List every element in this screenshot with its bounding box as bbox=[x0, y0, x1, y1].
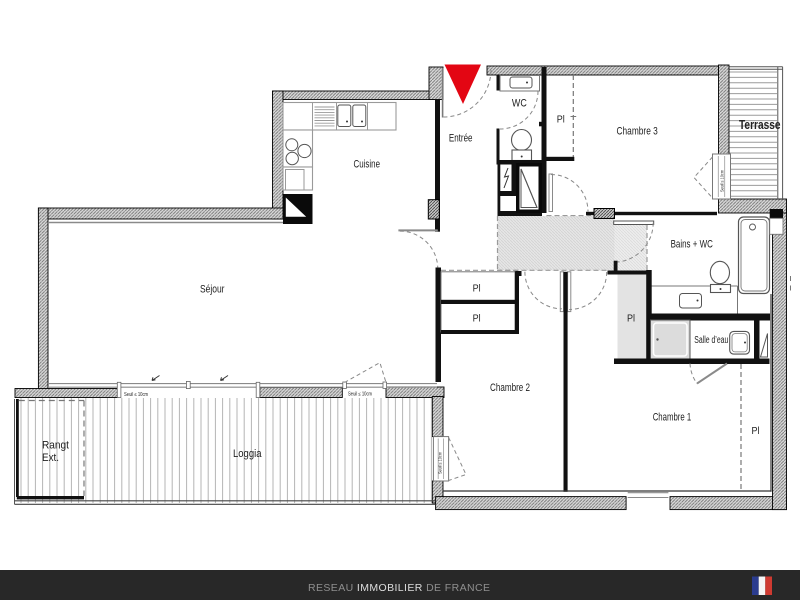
svg-text:Pl: Pl bbox=[752, 425, 760, 437]
svg-text:Seuil ≤ 10cm: Seuil ≤ 10cm bbox=[720, 170, 725, 192]
svg-text:Cuisine: Cuisine bbox=[354, 159, 381, 171]
svg-text:Salle d’eau: Salle d’eau bbox=[694, 335, 728, 346]
svg-text:RESEAU IMMOBILIER DE FRANCE: RESEAU IMMOBILIER DE FRANCE bbox=[308, 582, 490, 594]
svg-text:Loggia: Loggia bbox=[233, 448, 262, 460]
svg-text:Pl: Pl bbox=[627, 313, 635, 325]
svg-text:Seuil ≤ 10cm: Seuil ≤ 10cm bbox=[348, 392, 372, 398]
svg-text:Bains + WC: Bains + WC bbox=[671, 239, 713, 251]
svg-text:Chambre 1: Chambre 1 bbox=[653, 412, 692, 424]
svg-text:Ext.: Ext. bbox=[42, 452, 59, 464]
svg-text:Seuil ≤ 10cm: Seuil ≤ 10cm bbox=[438, 452, 443, 474]
svg-text:Seuil ≤ 10cm: Seuil ≤ 10cm bbox=[124, 392, 148, 398]
svg-text:Pl: Pl bbox=[473, 283, 481, 295]
svg-text:Pl: Pl bbox=[557, 114, 565, 126]
svg-text:Rangt: Rangt bbox=[42, 440, 69, 452]
svg-text:Entrée: Entrée bbox=[449, 133, 473, 145]
svg-text:Séjour: Séjour bbox=[200, 284, 225, 296]
svg-text:Chambre 3: Chambre 3 bbox=[617, 126, 658, 138]
svg-text:WC: WC bbox=[512, 98, 527, 110]
svg-text:Terrasse: Terrasse bbox=[739, 118, 781, 132]
svg-text:Chambre 2: Chambre 2 bbox=[490, 382, 530, 394]
svg-text:Pl: Pl bbox=[473, 313, 481, 325]
